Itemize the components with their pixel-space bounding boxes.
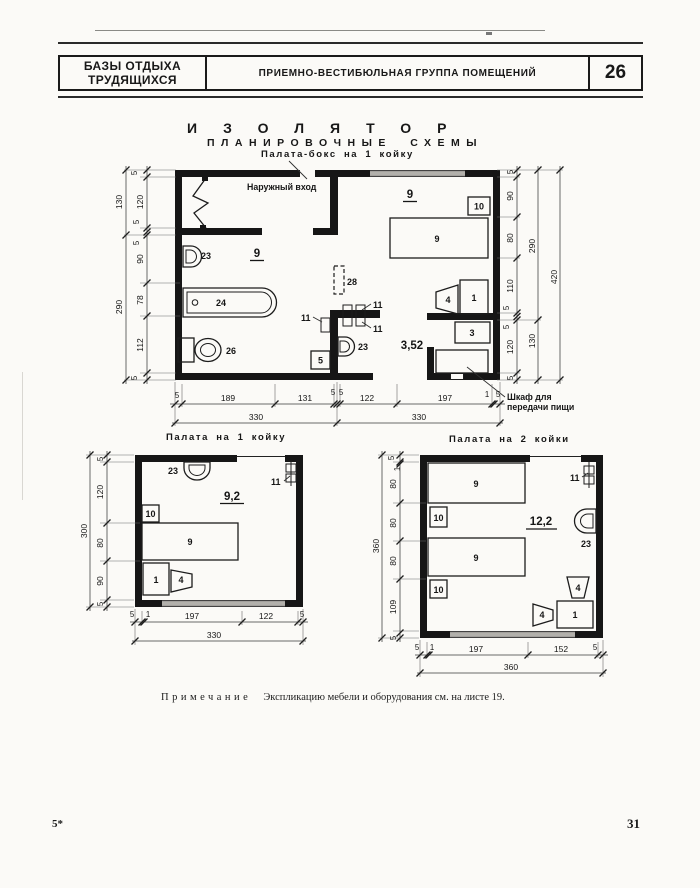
item-label-sink: 23: [201, 251, 211, 261]
item-label-table: 1: [572, 610, 577, 620]
svg-text:120: 120: [95, 485, 105, 499]
bathtub: [183, 288, 277, 317]
svg-text:290: 290: [527, 239, 537, 253]
svg-text:5: 5: [130, 170, 139, 175]
toilet: [178, 338, 221, 362]
wall-sink: [184, 462, 210, 480]
item-label-hook: 11: [570, 473, 580, 483]
wall-sink: [575, 509, 597, 533]
svg-text:120: 120: [505, 340, 515, 354]
item-label-sink: 23: [581, 539, 591, 549]
svg-text:78: 78: [135, 295, 145, 305]
svg-text:189: 189: [221, 393, 235, 403]
plan-one-bed-ward: 9,2 23 11 10 9 1 4 5 120 80 90 5 300 5 1…: [79, 451, 308, 645]
plan-box-ward: Наружный вход Шкаф для передачи пищи 9 9…: [114, 161, 574, 427]
svg-text:5: 5: [130, 610, 135, 619]
svg-text:197: 197: [438, 393, 452, 403]
svg-text:5: 5: [132, 240, 141, 245]
bathroom-sink: [183, 246, 202, 267]
item-label-bath: 24: [216, 298, 226, 308]
item-label-chair: 4: [539, 610, 544, 620]
svg-text:5: 5: [506, 169, 515, 174]
item-label-bed: 9: [473, 553, 478, 563]
svg-text:130: 130: [527, 334, 537, 348]
folding-screen: [193, 177, 208, 229]
item-label-table: 1: [153, 575, 158, 585]
svg-text:5: 5: [96, 601, 105, 606]
item-label-chair: 4: [445, 295, 450, 305]
svg-text:420: 420: [549, 270, 559, 284]
svg-text:80: 80: [388, 556, 398, 566]
svg-text:5: 5: [96, 456, 105, 461]
svg-text:130: 130: [114, 195, 124, 209]
item-label-hook: 11: [373, 324, 383, 334]
item-label-bed: 9: [434, 234, 439, 244]
svg-text:1: 1: [393, 467, 402, 471]
svg-text:112: 112: [135, 338, 145, 352]
svg-text:122: 122: [360, 393, 374, 403]
svg-text:5: 5: [339, 388, 344, 397]
svg-text:360: 360: [371, 539, 381, 553]
svg-text:330: 330: [207, 630, 221, 640]
svg-text:90: 90: [505, 191, 515, 201]
svg-text:5: 5: [593, 643, 598, 652]
svg-text:80: 80: [505, 233, 515, 243]
dimension-lines: [378, 451, 608, 677]
svg-text:1: 1: [485, 390, 489, 399]
item-label-stand: 3: [469, 328, 474, 338]
svg-text:5: 5: [132, 219, 141, 224]
item-label-sink: 23: [168, 466, 178, 476]
cupboard-label-1: Шкаф для: [507, 392, 552, 402]
svg-text:80: 80: [95, 538, 105, 548]
svg-text:330: 330: [412, 412, 426, 422]
floor-plans-drawing: Наружный вход Шкаф для передачи пищи 9 9…: [0, 0, 700, 888]
item-label-bed: 9: [187, 537, 192, 547]
svg-text:300: 300: [79, 524, 89, 538]
svg-text:1: 1: [430, 643, 434, 652]
svg-text:330: 330: [249, 412, 263, 422]
svg-text:5: 5: [415, 643, 420, 652]
svg-text:80: 80: [388, 518, 398, 528]
cupboard-label-2: передачи пищи: [507, 402, 574, 412]
item-label-nightstand: 10: [433, 585, 443, 595]
svg-text:131: 131: [298, 393, 312, 403]
item-label-hook: 11: [271, 477, 281, 487]
item-label-nightstand: 10: [474, 202, 484, 212]
svg-text:90: 90: [95, 576, 105, 586]
svg-text:5: 5: [496, 390, 501, 399]
room-number: 9: [254, 248, 260, 260]
svg-text:5: 5: [502, 324, 511, 329]
svg-text:5: 5: [502, 305, 511, 310]
svg-text:120: 120: [135, 195, 145, 209]
svg-text:5: 5: [389, 635, 398, 640]
item-label-stool: 5: [318, 356, 323, 366]
privacy-screen: [334, 266, 344, 294]
svg-text:5: 5: [331, 388, 336, 397]
item-label-hook: 11: [373, 300, 383, 310]
svg-text:90: 90: [135, 254, 145, 264]
scanned-page: { "header": { "org_line1": "БАЗЫ ОТДЫХА"…: [0, 0, 700, 888]
svg-text:290: 290: [114, 300, 124, 314]
room-area-label: 9,2: [224, 491, 240, 503]
svg-text:152: 152: [554, 644, 568, 654]
svg-text:5: 5: [175, 391, 180, 400]
item-label-chair: 4: [178, 575, 183, 585]
plan-two-bed-ward: 12,2 9 9 10 10 11 23 4 4 1 5 1 80 80 80 …: [371, 451, 608, 677]
item-label-nightstand: 10: [433, 513, 443, 523]
coat-hook: [582, 462, 594, 488]
svg-text:109: 109: [388, 600, 398, 614]
svg-text:5: 5: [130, 375, 139, 380]
item-label-wc: 26: [226, 346, 236, 356]
room-number: 9: [407, 189, 413, 201]
corridor-area-label: 3,52: [401, 340, 423, 352]
item-label-chair: 4: [575, 583, 580, 593]
svg-text:110: 110: [505, 279, 515, 293]
svg-text:360: 360: [504, 662, 518, 672]
item-label-nightstand: 10: [145, 509, 155, 519]
svg-text:197: 197: [469, 644, 483, 654]
item-label-bed: 9: [473, 479, 478, 489]
corridor-sink: [338, 337, 355, 356]
dimension-labels: 5 1 80 80 80 109 5 360 5 1 197 152 5 360: [371, 455, 598, 672]
item-label-table: 1: [471, 293, 476, 303]
item-label-screen: 28: [347, 277, 357, 287]
svg-text:5: 5: [387, 455, 396, 460]
entrance-label: Наружный вход: [247, 182, 317, 192]
item-label-sink: 23: [358, 342, 368, 352]
food-pass-cupboard: [436, 350, 488, 373]
svg-text:122: 122: [259, 611, 273, 621]
svg-text:197: 197: [185, 611, 199, 621]
svg-text:5: 5: [506, 375, 515, 380]
coat-hook: [284, 460, 296, 486]
svg-text:1: 1: [146, 610, 150, 619]
room-area-label: 12,2: [530, 516, 552, 528]
item-label-hook: 11: [301, 313, 311, 323]
svg-text:80: 80: [388, 479, 398, 489]
svg-text:5: 5: [300, 610, 305, 619]
